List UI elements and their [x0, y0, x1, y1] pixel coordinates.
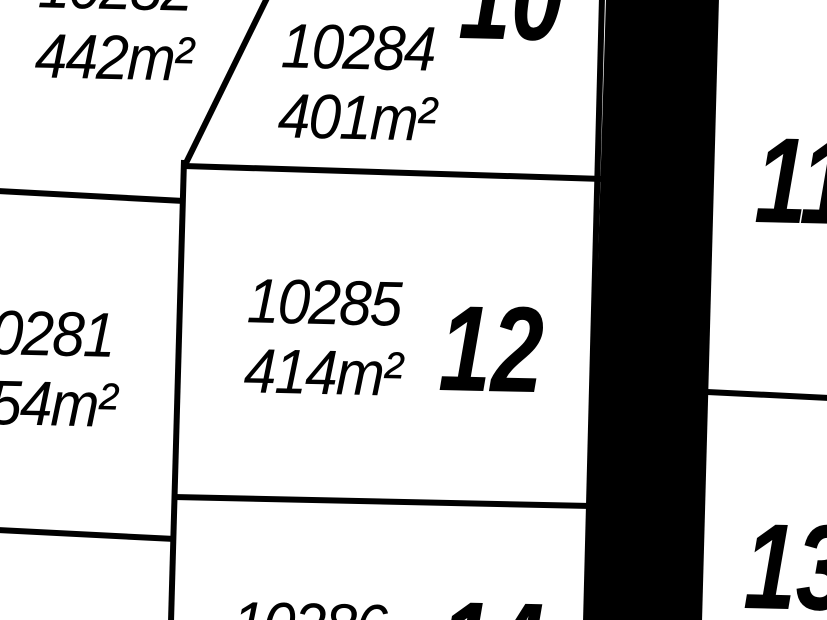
parcel-label-10281: 0281 54m²: [0, 298, 205, 443]
parcel-label-10284: 10284 401m²: [262, 11, 451, 155]
street-number-11: 11: [754, 119, 827, 243]
parcel-label-10285: 10285 414m²: [228, 266, 417, 410]
cadastral-map-canvas[interactable]: 10282 442m² 10284 401m² 0281 54m² 10285 …: [0, 0, 827, 620]
boundary-11-13: [707, 392, 827, 398]
lot-area: 54m²: [0, 368, 204, 443]
boundary-10284-10285: [184, 166, 603, 179]
parcel-label-10286: 10286: [215, 589, 403, 620]
parcel-label-10282: 10282 442m²: [19, 0, 208, 95]
lot-number: 10285: [230, 266, 418, 340]
lot-area: 401m²: [262, 81, 450, 155]
lot-number: 10284: [264, 11, 452, 85]
lot-number: 10286: [215, 589, 403, 620]
street-number-14: 14: [438, 583, 545, 620]
street-number-12: 12: [438, 287, 545, 411]
lot-number: 0281: [0, 298, 205, 373]
boundary-10282-10281: [0, 191, 184, 201]
boundary-10285-10286: [174, 497, 591, 506]
road-strip: [587, 0, 719, 620]
street-number-10: 10: [458, 0, 565, 59]
street-number-13: 13: [743, 505, 827, 620]
lot-area: 414m²: [228, 336, 416, 410]
boundary-10281-south: [0, 530, 175, 539]
lot-area: 442m²: [19, 21, 207, 95]
